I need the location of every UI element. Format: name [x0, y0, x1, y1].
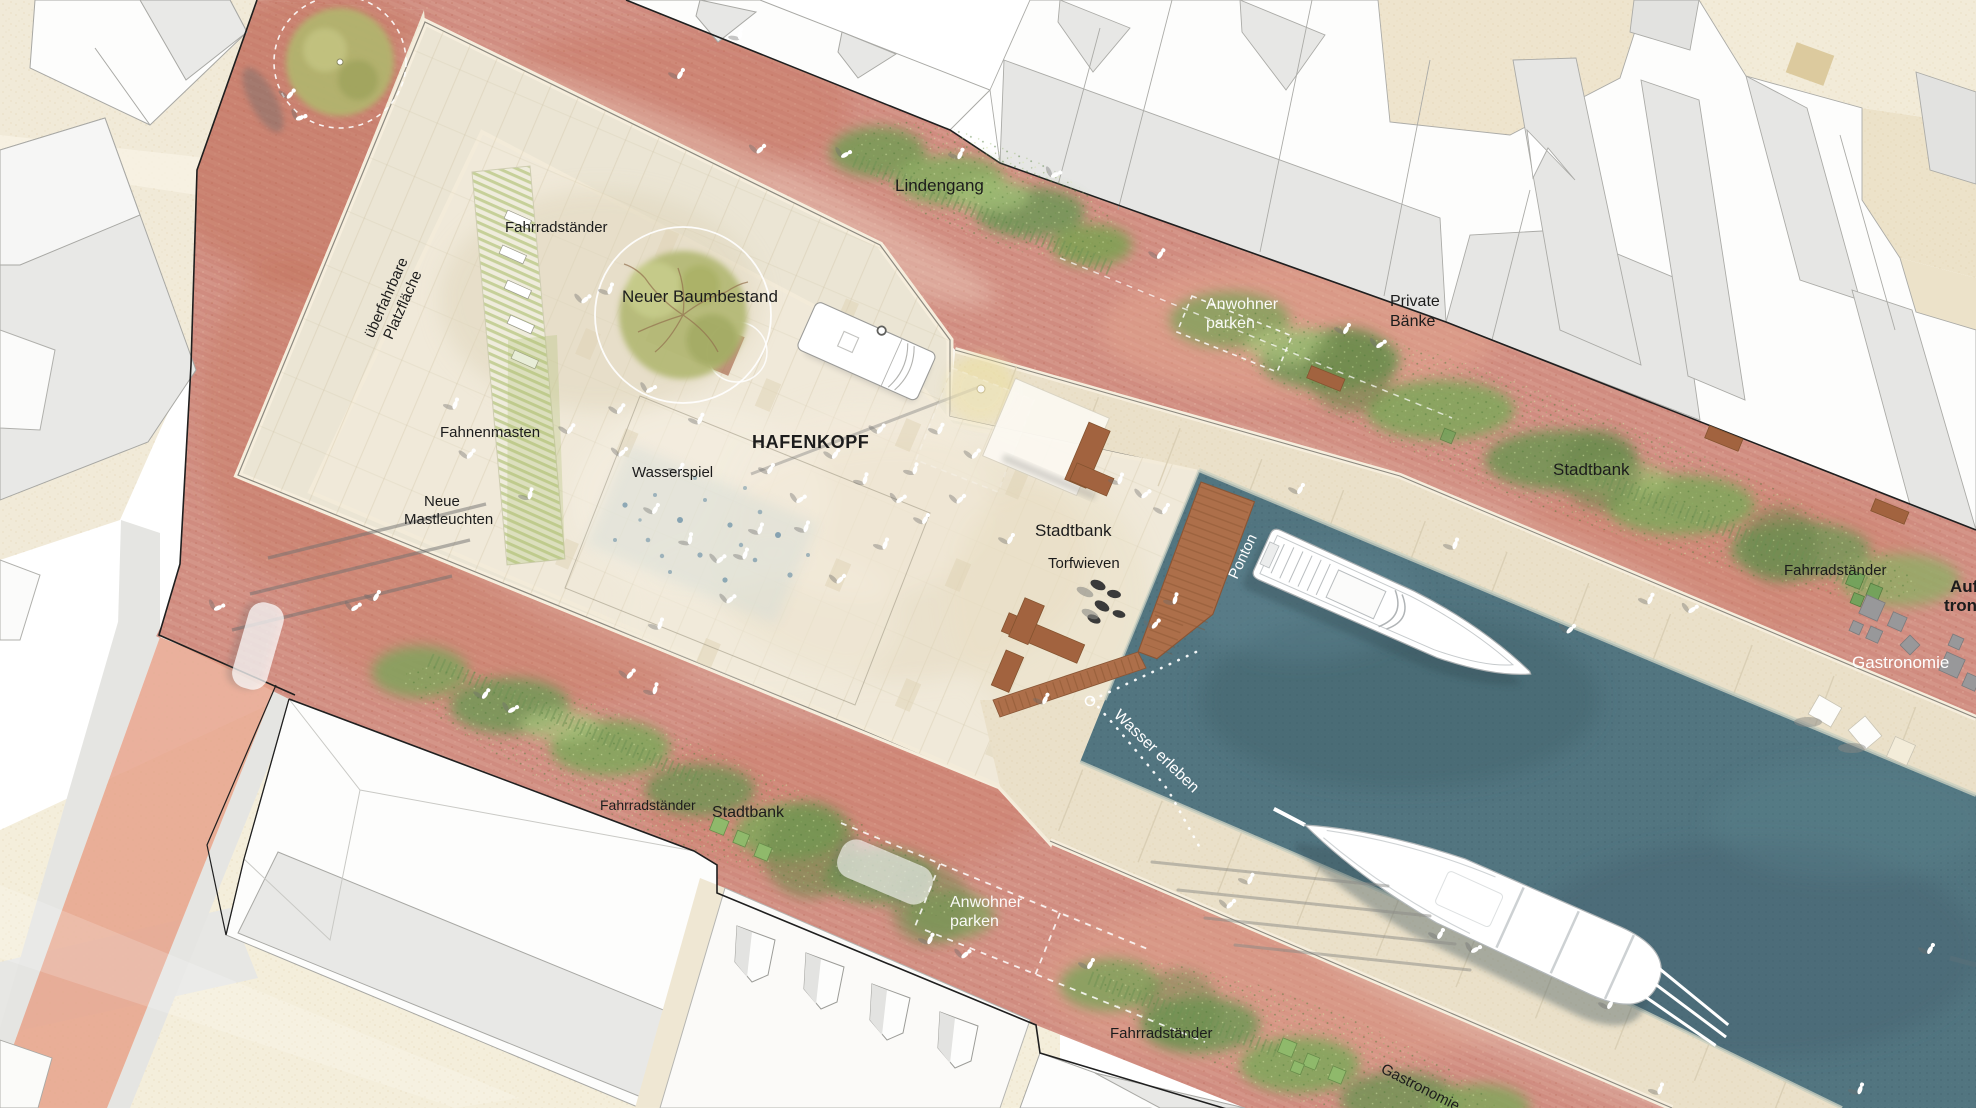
svg-text:Stadtbank: Stadtbank: [712, 804, 785, 821]
svg-text:Stadtbank: Stadtbank: [1553, 460, 1630, 479]
svg-text:HAFENKOPF: HAFENKOPF: [752, 432, 869, 452]
svg-text:Neuer Baumbestand: Neuer Baumbestand: [622, 287, 778, 306]
svg-text:Private: Private: [1390, 293, 1440, 310]
svg-text:Neue: Neue: [424, 493, 460, 510]
svg-text:Stadtbank: Stadtbank: [1035, 521, 1112, 540]
svg-text:Bänke: Bänke: [1390, 313, 1435, 330]
svg-text:Torfwieven: Torfwieven: [1048, 555, 1120, 572]
svg-text:Fahrradständer: Fahrradständer: [505, 219, 608, 236]
svg-text:Anwohner: Anwohner: [950, 894, 1023, 911]
svg-text:Mastleuchten: Mastleuchten: [404, 511, 493, 528]
svg-text:Fahrradständer: Fahrradständer: [1110, 1025, 1213, 1042]
svg-text:tron: tron: [1944, 596, 1976, 615]
svg-text:parken: parken: [950, 913, 999, 930]
svg-text:Gastronomie: Gastronomie: [1852, 653, 1949, 672]
svg-text:Lindengang: Lindengang: [895, 176, 984, 195]
svg-text:Auf: Auf: [1950, 577, 1976, 596]
svg-text:parken: parken: [1206, 315, 1255, 332]
svg-text:Fahrradständer: Fahrradständer: [600, 797, 696, 813]
svg-text:Fahrradständer: Fahrradständer: [1784, 562, 1887, 579]
svg-text:Anwohner: Anwohner: [1206, 296, 1279, 313]
svg-text:Fahnenmasten: Fahnenmasten: [440, 424, 540, 441]
svg-text:Wasserspiel: Wasserspiel: [632, 464, 713, 481]
